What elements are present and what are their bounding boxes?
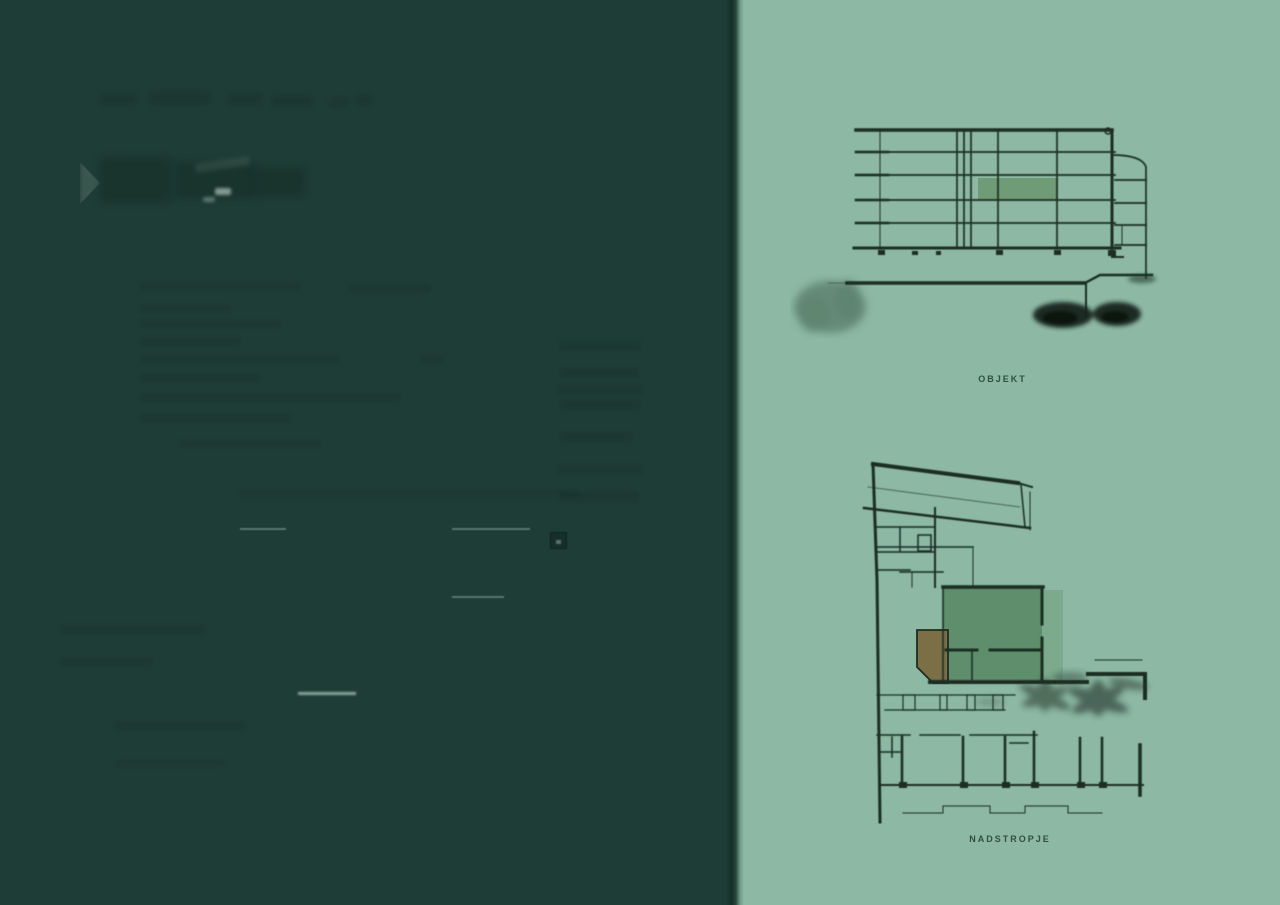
elevation-drawing <box>790 112 1195 347</box>
faint-text-smudge <box>560 492 638 501</box>
panel-divider <box>726 0 744 905</box>
highlighted-unit-fill <box>943 587 1042 680</box>
faint-text-smudge <box>115 760 225 767</box>
underline-rule <box>452 528 530 530</box>
unit-shadow-fill <box>1042 590 1063 685</box>
faint-text-smudge <box>356 96 372 104</box>
underline-rule <box>298 692 356 695</box>
faint-text-smudge <box>558 385 642 394</box>
faint-text-smudge <box>140 415 290 422</box>
faint-text-smudge <box>60 625 205 633</box>
faint-text-smudge <box>560 400 640 409</box>
faint-text-smudge <box>140 394 400 401</box>
floor-plan-drawing <box>840 452 1180 830</box>
brochure-page: OBJEKT <box>0 0 1280 905</box>
faint-text-smudge <box>150 92 210 104</box>
faded-square-icon-mark <box>556 540 561 544</box>
faint-text-smudge <box>560 368 638 377</box>
left-text-panel <box>0 0 728 905</box>
faint-text-smudge <box>330 98 348 106</box>
faint-text-smudge <box>240 490 580 497</box>
underline-rule <box>240 528 286 530</box>
faint-text-smudge <box>228 94 262 104</box>
faded-logo-smudge <box>100 158 170 202</box>
faint-text-smudge <box>420 356 442 363</box>
faint-text-smudge <box>560 341 640 350</box>
faint-text-smudge <box>272 96 312 106</box>
faint-text-smudge <box>560 432 632 441</box>
faint-text-smudge <box>350 285 430 292</box>
faint-text-smudge <box>140 320 280 327</box>
faint-text-smudge <box>140 305 230 312</box>
floor-plan-label: NADSTROPJE <box>840 834 1180 844</box>
faint-text-smudge <box>558 465 642 474</box>
faded-logo-highlight <box>215 188 231 195</box>
floor-plan-figure <box>840 452 1180 830</box>
faint-text-smudge <box>180 440 320 447</box>
faint-text-smudge <box>140 375 260 382</box>
faint-text-smudge <box>115 722 245 729</box>
faint-text-smudge <box>140 338 240 345</box>
highlighted-storey <box>978 178 1058 200</box>
faint-text-smudge <box>100 94 136 104</box>
faded-logo-highlight <box>203 197 215 202</box>
faded-logo-smudge <box>255 168 305 196</box>
elevation-figure <box>790 112 1195 347</box>
tree-silhouette <box>794 280 866 333</box>
elevation-label: OBJEKT <box>800 374 1205 384</box>
faded-logo-mark <box>80 162 100 204</box>
faint-text-smudge <box>140 283 300 290</box>
underline-rule <box>452 596 504 598</box>
faint-text-smudge <box>60 658 152 665</box>
faint-text-smudge <box>140 356 340 363</box>
